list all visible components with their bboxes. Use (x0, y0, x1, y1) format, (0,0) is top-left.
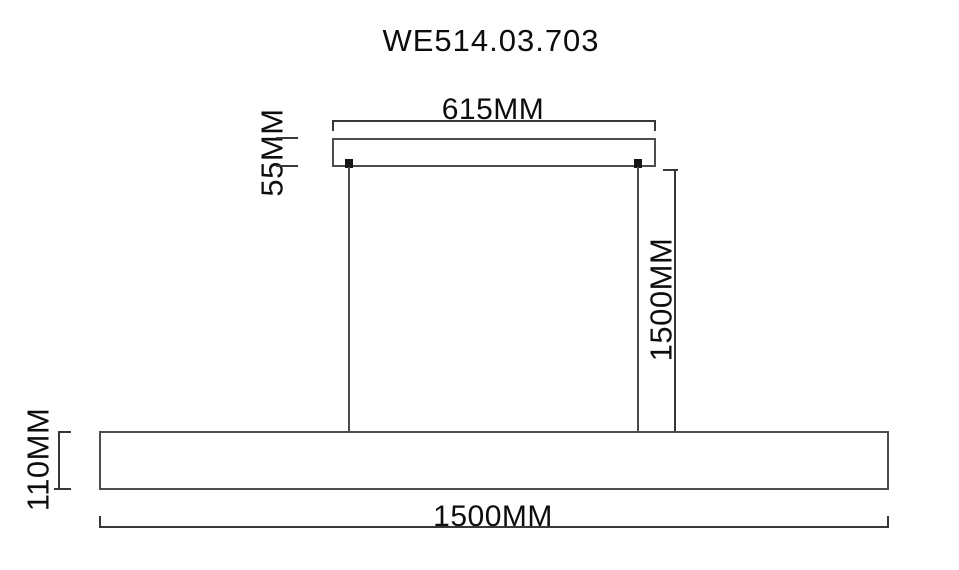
product-code-label: WE514.03.703 (341, 25, 641, 56)
canopy-width-dimension-tick-right (654, 120, 656, 131)
canopy-height-dimension-tick-bottom (276, 165, 298, 167)
canopy-width-dimension-tick-left (332, 120, 334, 131)
lamp-bar-outline (99, 431, 889, 490)
suspension-wire-left (348, 167, 350, 431)
canopy-height-dimension-tick-top (276, 137, 298, 139)
bar-height-dimension-tick-top (58, 431, 71, 433)
ceiling-canopy-outline (332, 138, 656, 167)
suspension-wire-right (637, 167, 639, 431)
bar-height-dimension-tick-bottom (54, 488, 71, 490)
drop-length-dimension-label: 1500MM (646, 230, 677, 370)
canopy-height-dimension-label: 55MM (257, 93, 288, 213)
dimension-drawing-canvas: WE514.03.703 615MM 55MM 1500MM 110MM 150… (0, 0, 959, 570)
bar-width-dimension-tick-left (99, 516, 101, 528)
bar-height-dimension-label: 110MM (23, 390, 54, 530)
bar-width-dimension-tick-right (887, 516, 889, 528)
bar-width-dimension-line (99, 526, 889, 528)
bar-height-dimension-line (58, 431, 60, 490)
canopy-width-dimension-line (332, 120, 656, 122)
